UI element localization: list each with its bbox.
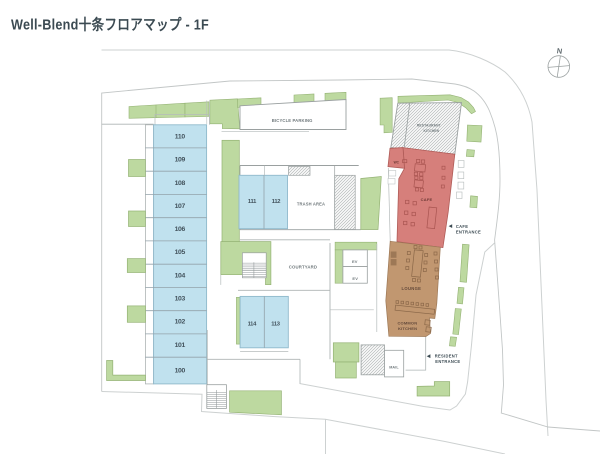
svg-text:105: 105 [175, 249, 186, 256]
svg-text:114: 114 [248, 321, 258, 327]
svg-text:ENTRANCE: ENTRANCE [456, 230, 481, 235]
svg-text:111: 111 [248, 199, 257, 205]
svg-text:COURTYARD: COURTYARD [289, 265, 317, 270]
svg-text:KITCHEN: KITCHEN [423, 129, 439, 133]
svg-text:COMMON: COMMON [397, 320, 417, 325]
svg-text:TRASH AREA: TRASH AREA [297, 202, 325, 207]
svg-text:110: 110 [175, 134, 186, 141]
svg-text:104: 104 [175, 272, 186, 279]
svg-text:100: 100 [175, 367, 186, 374]
svg-text:KITCHEN: KITCHEN [398, 326, 417, 331]
svg-text:MAIL: MAIL [389, 365, 399, 369]
svg-text:EV: EV [352, 276, 358, 281]
svg-text:101: 101 [175, 342, 186, 349]
svg-text:WC: WC [394, 160, 400, 164]
svg-text:ENTRANCE: ENTRANCE [435, 359, 460, 364]
svg-text:103: 103 [175, 296, 186, 303]
svg-text:BICYCLE PARKING: BICYCLE PARKING [272, 118, 313, 123]
svg-text:CAFE: CAFE [421, 197, 433, 202]
svg-text:109: 109 [175, 157, 186, 164]
svg-text:108: 108 [175, 180, 186, 187]
svg-text:102: 102 [175, 319, 186, 326]
svg-text:RESTAURANT: RESTAURANT [417, 124, 441, 128]
svg-text:N: N [556, 46, 563, 56]
svg-text:113: 113 [271, 321, 281, 327]
svg-text:RESIDENT: RESIDENT [435, 353, 458, 358]
svg-text:CAFE: CAFE [456, 224, 468, 229]
svg-text:107: 107 [175, 203, 186, 210]
svg-text:EV: EV [352, 259, 358, 264]
svg-text:LOUNGE: LOUNGE [402, 286, 422, 291]
svg-text:112: 112 [272, 199, 281, 205]
svg-text:Well-Blend十条フロアマップ - 1F: Well-Blend十条フロアマップ - 1F [11, 16, 209, 34]
svg-text:106: 106 [175, 226, 186, 233]
